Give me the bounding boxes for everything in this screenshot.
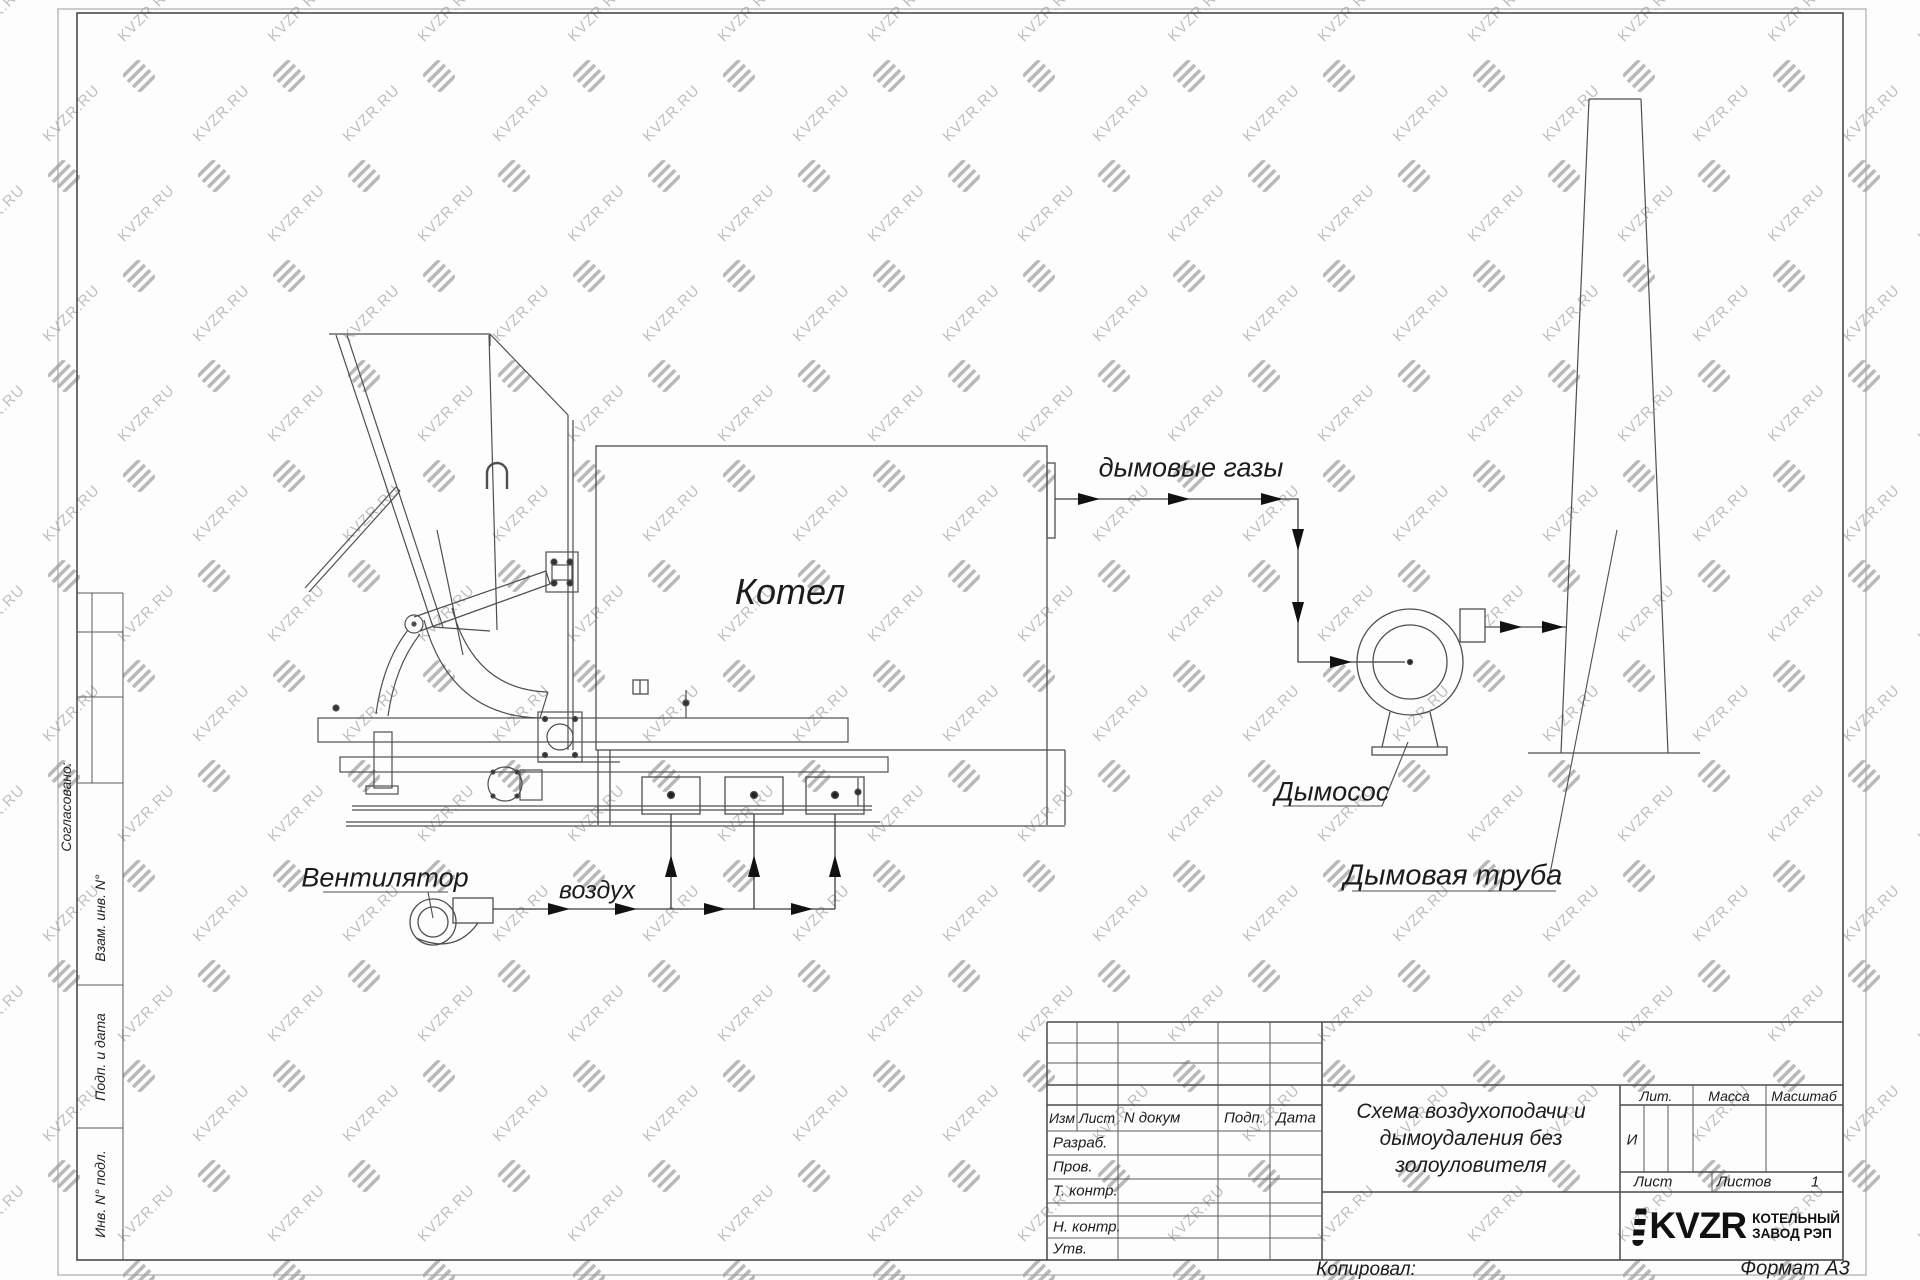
fan-label: Вентилятор xyxy=(301,863,468,894)
tb-prov-label: Пров. xyxy=(1053,1159,1093,1176)
chimney-label: Дымовая труба xyxy=(1344,860,1563,893)
tb-podp-header: Подп. xyxy=(1224,1110,1264,1127)
boiler-outline xyxy=(346,446,1065,826)
drawing-svg xyxy=(0,0,1920,1280)
doc-title-line2: дымоудаления без xyxy=(1380,1127,1563,1151)
tb-izm-header: Изм xyxy=(1049,1110,1075,1126)
brand-name: KVZR xyxy=(1649,1205,1746,1247)
kopiroval-label: Копировал: xyxy=(1316,1259,1416,1280)
kvzr-logo-icon xyxy=(1632,1206,1648,1246)
smoke-gas-path xyxy=(1055,493,1405,668)
vzam-inv-label: Взам. инв. N° xyxy=(92,874,108,961)
frame-border xyxy=(77,13,1843,1260)
doc-title-line1: Схема воздухоподачи и xyxy=(1356,1100,1585,1124)
brand-subtitle-line2: ЗАВОД РЭП xyxy=(1752,1226,1840,1241)
air-path xyxy=(493,814,841,915)
tb-ndokum-header: N докум xyxy=(1124,1110,1181,1127)
boiler-label: Котел xyxy=(735,571,845,613)
inv-podl-label: Инв. N° подл. xyxy=(92,1150,108,1237)
fan-drawing xyxy=(323,892,493,945)
brand-subtitle: КОТЕЛЬНЫЙ ЗАВОД РЭП xyxy=(1752,1211,1840,1241)
chimney-outline xyxy=(1352,99,1700,891)
tb-razrab-label: Разраб. xyxy=(1053,1135,1107,1152)
tb-list-header: Лист xyxy=(1079,1110,1115,1126)
tb-listov-label: Листов xyxy=(1717,1174,1772,1191)
tb-lit-value: И xyxy=(1627,1132,1638,1149)
tb-lit-header: Лит. xyxy=(1640,1088,1673,1104)
brand-block: KVZR КОТЕЛЬНЫЙ ЗАВОД РЭП xyxy=(1634,1200,1840,1252)
tb-data-header: Дата xyxy=(1276,1110,1316,1127)
tb-nkontr-label: Н. контр. xyxy=(1053,1219,1121,1236)
air-label: воздух xyxy=(559,877,635,906)
drawing-sheet: KVZR.RUKVZR.RUKVZR.RUKVZR.RUKVZR.RUKVZR.… xyxy=(0,0,1920,1280)
podp-data-label: Подп. и дата xyxy=(92,1013,108,1101)
format-label: Формат А3 xyxy=(1740,1258,1849,1280)
tb-list2-label: Лист xyxy=(1634,1174,1673,1191)
smoke-exhauster-label: Дымосос xyxy=(1275,777,1389,808)
brand-subtitle-line1: КОТЕЛЬНЫЙ xyxy=(1752,1211,1840,1226)
smoke-gases-label: дымовые газы xyxy=(1099,453,1284,484)
doc-title-line3: золоуловителя xyxy=(1395,1154,1547,1178)
tb-tkontr-label: Т. контр. xyxy=(1053,1183,1118,1200)
tb-masshtab-header: Масштаб xyxy=(1771,1088,1836,1104)
tb-utv-label: Утв. xyxy=(1053,1241,1087,1258)
tb-massa-header: Масса xyxy=(1708,1088,1749,1104)
tb-listov-value: 1 xyxy=(1811,1174,1819,1191)
soglasovano-label: Согласовано: xyxy=(58,762,74,851)
